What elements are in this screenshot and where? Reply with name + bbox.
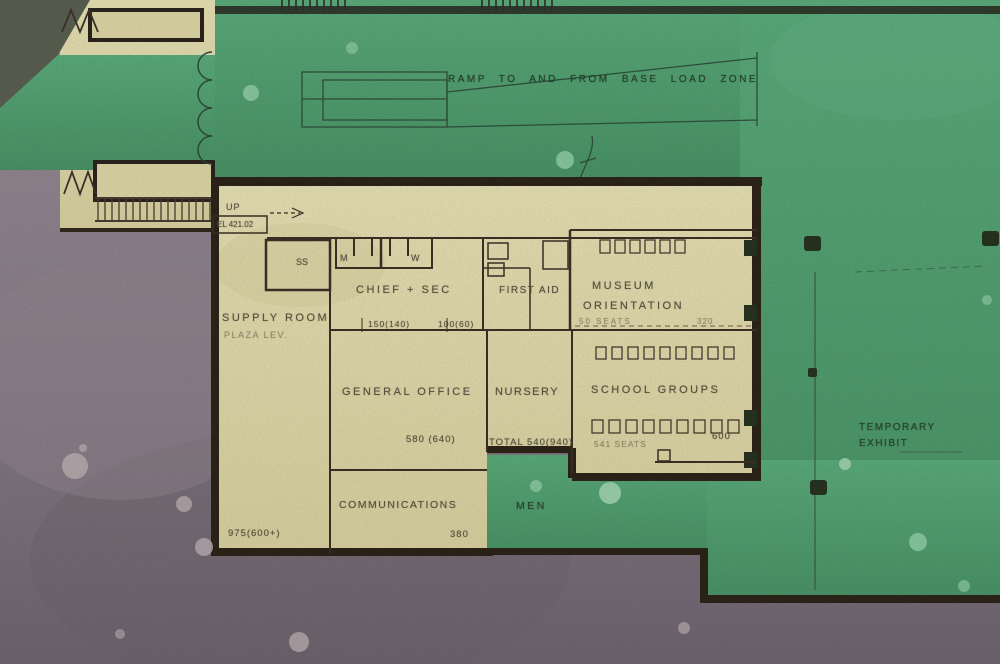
nursery-total: TOTAL 540(940): [489, 437, 573, 448]
plan-drawing: [0, 0, 1000, 664]
chief-sec-area-left: 150(140): [368, 319, 410, 329]
supply-room-area: 975(600+): [228, 528, 281, 539]
stair-elevation-label: EL 421.02: [217, 220, 253, 229]
temporary-exhibit-label-2: EXHIBIT: [859, 438, 908, 449]
museum-orientation-label-1: MUSEUM: [592, 280, 656, 292]
stair-up-label: UP: [226, 202, 241, 212]
toilet-m-label: M: [340, 253, 348, 263]
nursery-label: NURSERY: [495, 386, 559, 398]
closet-label: SS: [296, 257, 308, 267]
school-groups-area: 600: [712, 431, 731, 442]
men-label: MEN: [516, 500, 547, 512]
communications-area: 380: [450, 529, 469, 540]
chief-sec-label: CHIEF + SEC: [356, 284, 452, 296]
general-office-area: 580 (640): [406, 434, 456, 445]
general-office-label: GENERAL OFFICE: [342, 386, 473, 398]
school-groups-label: SCHOOL GROUPS: [591, 384, 720, 396]
communications-label: COMMUNICATIONS: [339, 499, 457, 511]
chief-sec-area-right: 100(60): [438, 319, 474, 329]
first-aid-label: FIRST AID: [499, 285, 560, 296]
supply-room-sublabel: PLAZA LEV.: [224, 330, 288, 340]
ramp-label: RAMP TO AND FROM BASE LOAD ZONE: [448, 74, 758, 85]
film-grain: [0, 0, 1000, 664]
supply-room-label: SUPPLY ROOM: [222, 312, 329, 324]
temporary-exhibit-label-1: TEMPORARY: [859, 422, 936, 433]
toilet-w-label: W: [411, 253, 420, 263]
museum-orientation-label-2: ORIENTATION: [583, 300, 684, 312]
school-groups-seats: 541 SEATS: [594, 439, 647, 449]
floor-plan-photo: RAMP TO AND FROM BASE LOAD ZONE UP EL 42…: [0, 0, 1000, 664]
museum-orientation-seats: 50 SEATS: [579, 317, 632, 326]
museum-orientation-area: 320: [697, 317, 713, 326]
